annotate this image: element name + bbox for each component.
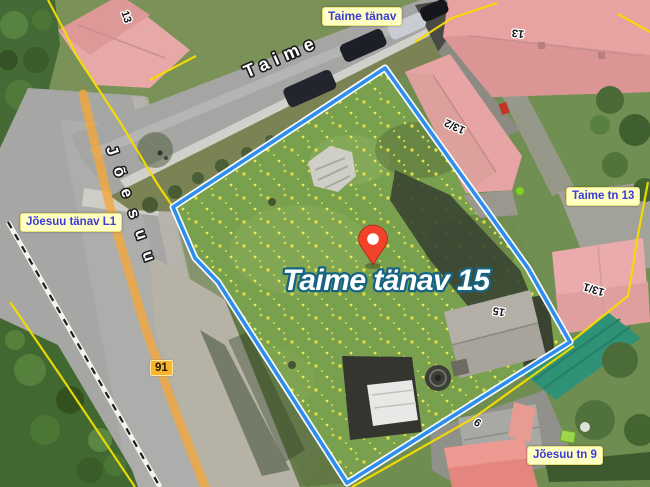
address-label-joesuu-tn-9[interactable]: Jõesuu tn 9 [527, 446, 603, 465]
address-label-joesuu-tanav-l1[interactable]: Jõesuu tänav L1 [20, 213, 122, 232]
pin-center [367, 233, 379, 245]
parcel-number-15: 15 [492, 304, 506, 318]
road-number-badge: 91 [150, 360, 173, 376]
selected-parcel-title: Taime tänav 15 [283, 264, 492, 297]
street-sign-taime-tanav[interactable]: Taime tänav [322, 7, 402, 26]
address-label-taime-tn-13[interactable]: Taime tn 13 [566, 187, 640, 206]
parcel-number-13-ne: 13 [511, 26, 525, 39]
aerial-map-view[interactable]: Taime Jõesuu 13 13 13/2 13/1 15 9 Taime … [0, 0, 650, 487]
map-canvas[interactable]: Taime Jõesuu 13 13 13/2 13/1 15 9 Taime … [0, 0, 650, 487]
green-object [560, 430, 576, 443]
